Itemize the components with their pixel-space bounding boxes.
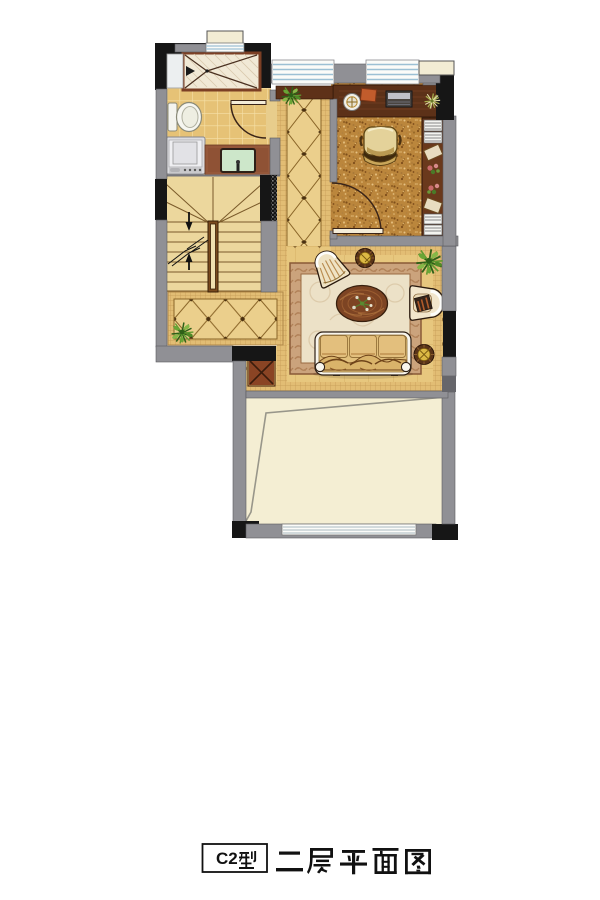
svg-text:C2: C2 bbox=[216, 849, 238, 868]
